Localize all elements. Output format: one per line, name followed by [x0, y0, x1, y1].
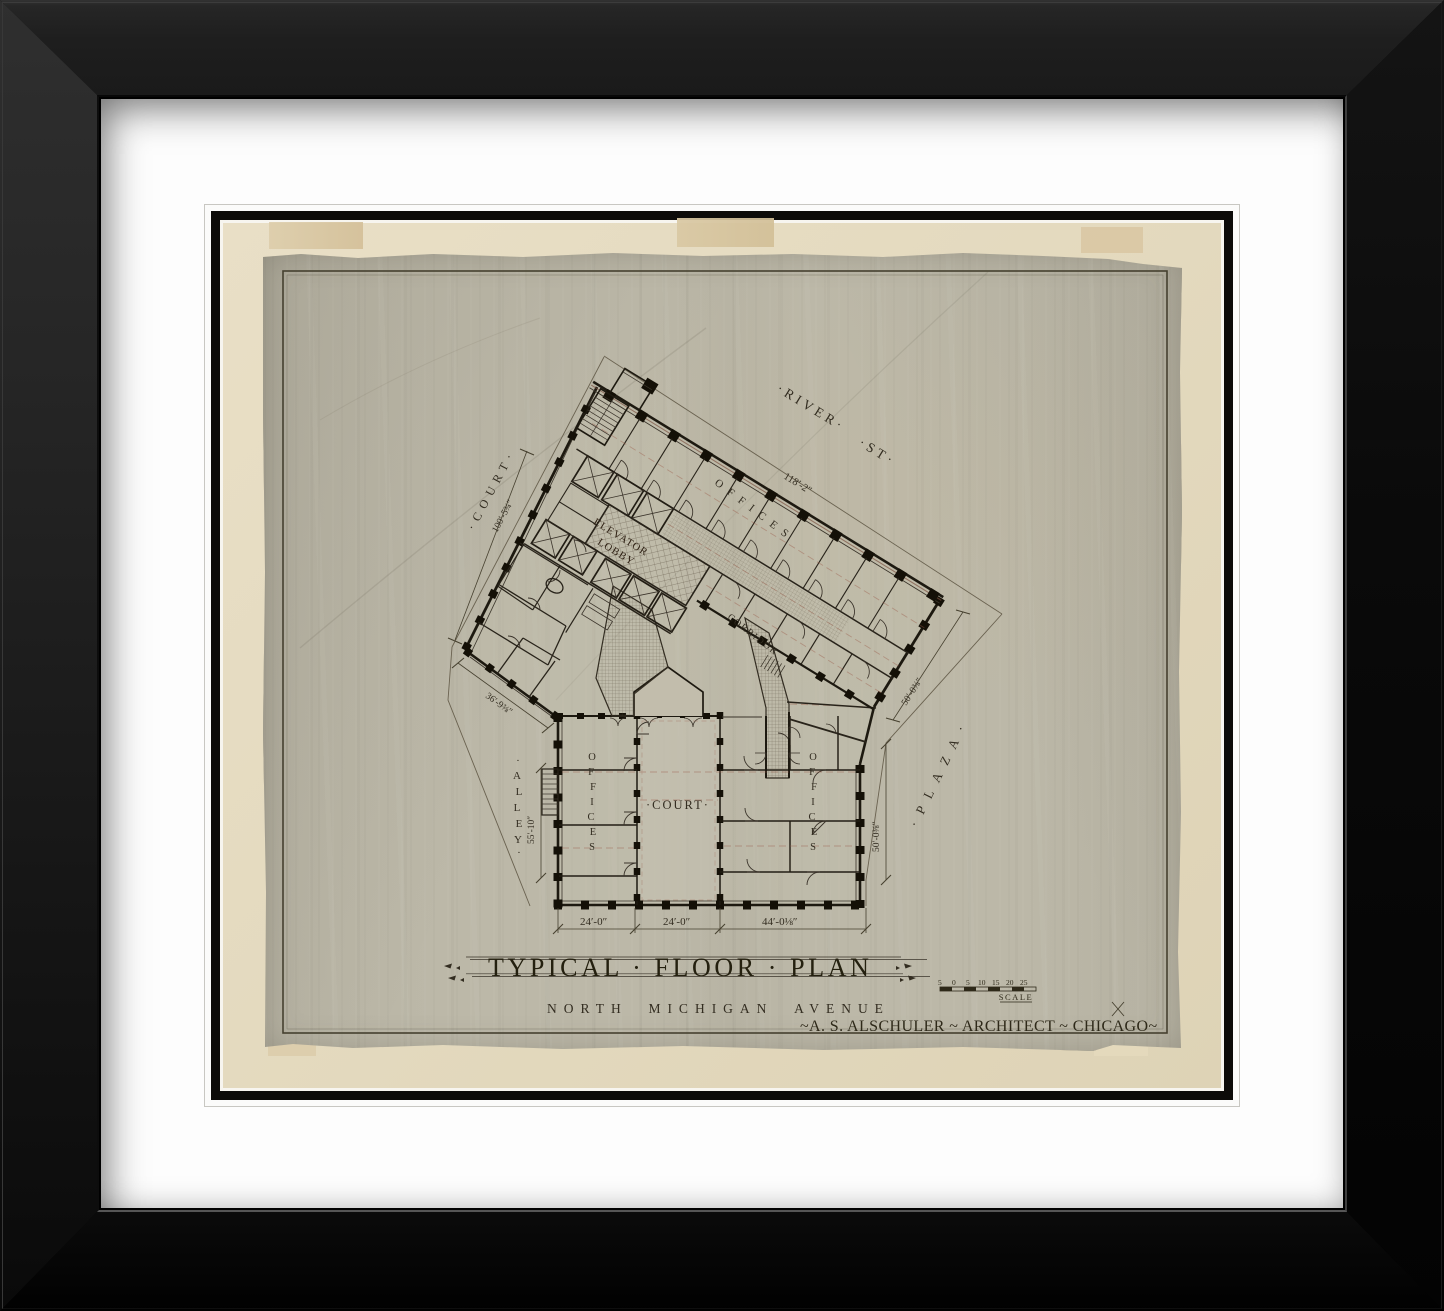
- svg-text:36′-9⅜″: 36′-9⅜″: [483, 691, 514, 717]
- svg-text:O: O: [809, 752, 817, 763]
- svg-text:·ST·: ·ST·: [856, 435, 899, 469]
- svg-text:E: E: [811, 827, 817, 838]
- svg-text:·: ·: [517, 847, 521, 859]
- svg-text:10: 10: [978, 978, 986, 987]
- svg-text:5: 5: [966, 978, 970, 987]
- svg-text:L: L: [514, 802, 521, 814]
- svg-text:L: L: [516, 786, 523, 798]
- svg-text:50′-0⅜″: 50′-0⅜″: [872, 821, 882, 852]
- svg-text:F: F: [590, 782, 596, 793]
- svg-text:~A. S. ALSCHULER ~ ARCHITECT ~: ~A. S. ALSCHULER ~ ARCHITECT ~ CHICAGO~: [800, 1018, 1158, 1035]
- svg-text:O: O: [588, 752, 596, 763]
- svg-text:44′-0⅛″: 44′-0⅛″: [762, 916, 797, 928]
- svg-text:F: F: [811, 782, 817, 793]
- svg-text:SCALE: SCALE: [999, 992, 1033, 1002]
- svg-text:I: I: [590, 797, 594, 808]
- svg-text:F: F: [809, 767, 815, 778]
- svg-text:55′-10″: 55′-10″: [527, 816, 537, 844]
- svg-text:A: A: [513, 770, 521, 782]
- svg-text:·RIVER·: ·RIVER·: [774, 381, 848, 434]
- svg-text:0: 0: [952, 978, 956, 987]
- svg-text:E: E: [590, 827, 596, 838]
- svg-text:TYPICAL · FLOOR · PLAN: TYPICAL · FLOOR · PLAN: [488, 953, 872, 982]
- svg-text:S: S: [810, 842, 816, 853]
- svg-text:E: E: [516, 818, 523, 830]
- svg-text:24′-0″: 24′-0″: [663, 916, 690, 928]
- svg-text:·: ·: [516, 755, 520, 767]
- svg-text:·PLAZA·: ·PLAZA·: [906, 714, 972, 829]
- svg-text:·COURT·: ·COURT·: [464, 446, 519, 532]
- svg-text:118′-2″: 118′-2″: [781, 471, 813, 496]
- svg-text:Y: Y: [514, 834, 522, 846]
- svg-text:5: 5: [938, 978, 942, 987]
- svg-text:24′-0″: 24′-0″: [580, 916, 607, 928]
- svg-text:S: S: [589, 842, 595, 853]
- svg-text:I: I: [811, 797, 815, 808]
- svg-text:F: F: [588, 767, 594, 778]
- svg-text:NORTH MICHIGAN AVENUE: NORTH MICHIGAN AVENUE: [547, 1001, 890, 1016]
- svg-text:100′-5¾″: 100′-5¾″: [491, 498, 516, 534]
- svg-text:15: 15: [992, 978, 1000, 987]
- svg-text:20: 20: [1006, 978, 1014, 987]
- svg-text:·COURT·: ·COURT·: [646, 798, 710, 812]
- svg-text:25: 25: [1020, 978, 1028, 987]
- svg-text:C: C: [587, 812, 594, 823]
- svg-text:C: C: [808, 812, 815, 823]
